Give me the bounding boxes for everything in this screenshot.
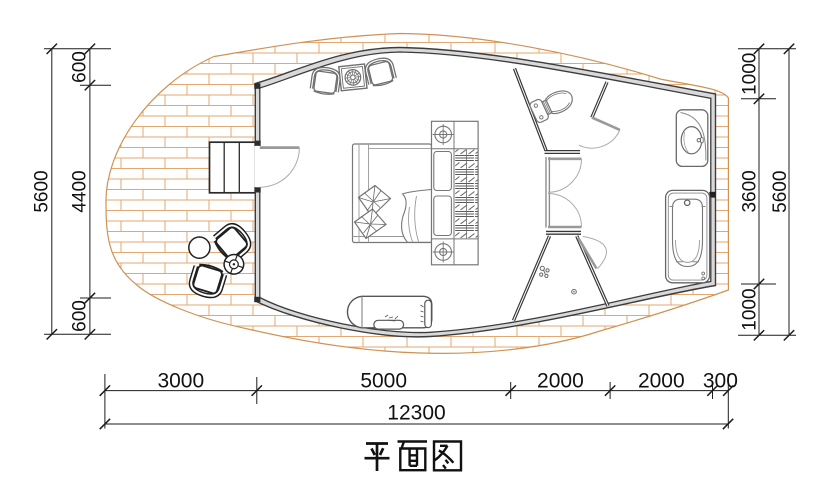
svg-text:1000: 1000 [740, 53, 761, 95]
svg-text:12300: 12300 [387, 402, 445, 425]
svg-text:600: 600 [70, 300, 91, 332]
svg-text:5000: 5000 [360, 370, 407, 393]
svg-text:300: 300 [703, 370, 738, 393]
svg-text:3600: 3600 [740, 170, 761, 212]
svg-text:5600: 5600 [770, 171, 791, 213]
svg-text:2000: 2000 [537, 370, 584, 393]
svg-text:3000: 3000 [157, 370, 204, 393]
svg-text:2000: 2000 [638, 370, 685, 393]
svg-text:600: 600 [70, 51, 91, 83]
svg-text:5600: 5600 [32, 170, 53, 212]
svg-text:4400: 4400 [70, 170, 91, 212]
svg-text:1000: 1000 [740, 288, 761, 330]
